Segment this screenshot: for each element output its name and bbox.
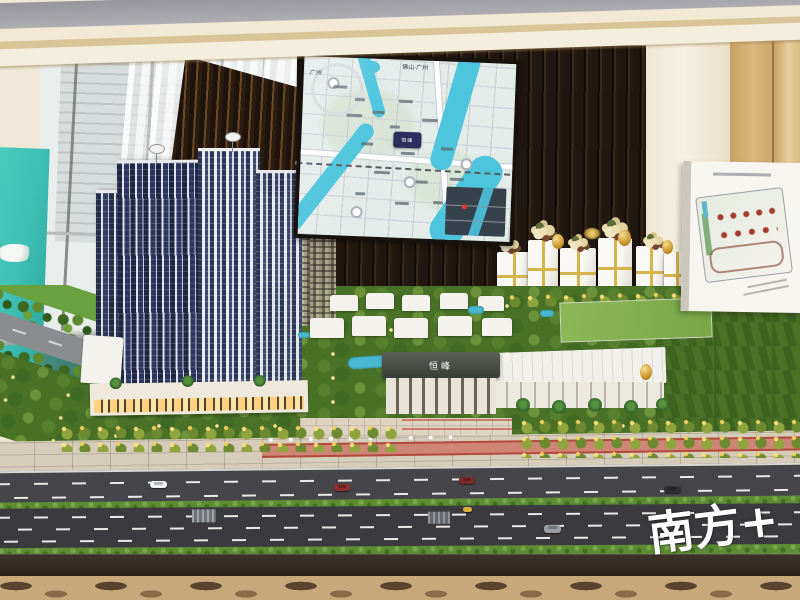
garden-pool — [468, 306, 484, 314]
podium-palm — [110, 377, 122, 389]
road-patch — [192, 509, 216, 522]
entrance-sign-text: 恒峰 — [429, 359, 453, 372]
flower-bouquet — [575, 240, 582, 247]
residential-tower-main — [117, 160, 201, 409]
garden-pool — [298, 332, 310, 338]
siteplan-board — [681, 161, 800, 313]
palm-tree — [656, 398, 669, 411]
garden-pool — [540, 310, 554, 317]
street-tree-row — [58, 424, 402, 452]
road-patch — [428, 512, 450, 524]
gold-egg-ornament — [552, 234, 564, 249]
board-edge — [681, 161, 692, 311]
tower-marker — [149, 144, 165, 154]
podium-palm — [182, 375, 194, 387]
garden-building — [482, 318, 512, 336]
lit-storefronts — [94, 396, 304, 413]
tower-marker — [225, 132, 241, 142]
garden-building — [330, 295, 358, 311]
gold-egg-ornament — [618, 230, 631, 246]
entrance-pavilion: 恒峰 — [382, 352, 500, 418]
garden-building — [310, 318, 344, 338]
street-tree-row-right — [518, 418, 800, 458]
lane-markings — [0, 475, 800, 485]
garden-building — [352, 316, 386, 336]
gold-emblem — [584, 228, 600, 239]
gold-egg-ornament — [662, 240, 673, 254]
entrance-roof-sign: 恒峰 — [382, 352, 500, 378]
retail-podium — [90, 380, 309, 416]
garden-building — [366, 293, 394, 309]
board-title-line — [713, 172, 771, 176]
toy-car-white — [150, 481, 167, 488]
screen-glare — [298, 56, 517, 242]
toy-car-red-2 — [459, 477, 475, 484]
toy-car-gray — [544, 525, 561, 533]
flower-bouquet — [539, 227, 547, 235]
palm-tree — [516, 398, 530, 412]
map-screen-frame: 佛山·广州 广州 恒峰 — [294, 52, 521, 246]
flower-bouquet — [650, 238, 657, 245]
podium-palm — [254, 375, 266, 387]
garden-building — [440, 293, 468, 309]
palm-tree — [588, 398, 602, 412]
toy-car-red — [334, 484, 350, 491]
map-screen: 佛山·广州 广州 恒峰 — [298, 56, 517, 242]
toy-car-yellow — [463, 507, 472, 512]
photo-canvas: 佛山·广州 广州 恒峰 — [0, 0, 800, 600]
teal-panel-ornament — [0, 244, 32, 262]
toy-car-dark — [664, 486, 681, 493]
gold-balloon — [640, 364, 652, 380]
palm-tree — [552, 400, 566, 414]
showroom-floor — [0, 576, 800, 600]
entrance-colonnade — [386, 378, 496, 414]
garden-building — [394, 318, 428, 338]
residential-tower-2 — [198, 148, 260, 401]
palm-tree — [624, 400, 638, 414]
garden-building — [402, 295, 430, 311]
garden-building — [438, 316, 472, 336]
